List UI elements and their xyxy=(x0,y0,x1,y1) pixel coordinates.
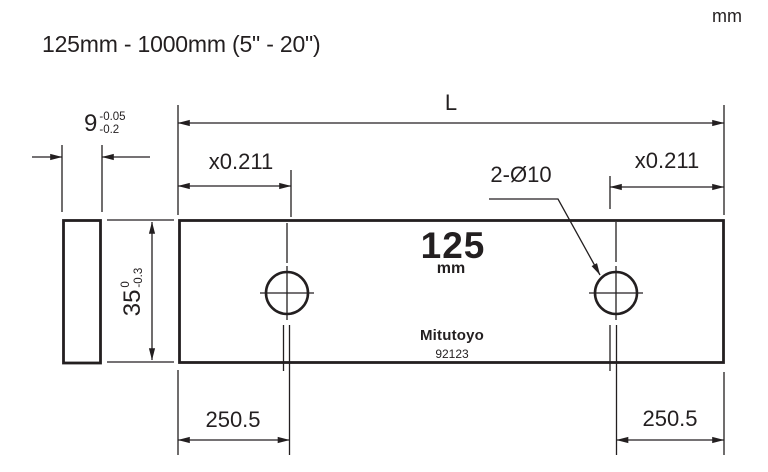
airy-right-label: x0.211 xyxy=(635,150,699,172)
drawing-geometry xyxy=(0,0,768,472)
length-label: L xyxy=(445,92,457,114)
height-value: 35 0 -0.3 xyxy=(121,268,145,317)
drawing-title: 125mm - 1000mm (5" - 20") xyxy=(42,33,320,56)
thickness-dimension xyxy=(32,145,150,212)
side-view-outline xyxy=(64,221,101,364)
plate-unit-marking: mm xyxy=(437,261,465,277)
height-tolerance: 0 -0.3 xyxy=(120,268,145,288)
airy-right-dimension xyxy=(610,176,724,209)
hole-offset-left-label: 250.5 xyxy=(205,409,260,431)
unit-label: mm xyxy=(712,7,742,25)
height-number: 35 xyxy=(121,290,145,317)
gauge-block-technical-drawing: 125mm - 1000mm (5" - 20") mm L x0.211 x0… xyxy=(0,0,768,472)
thickness-number: 9 xyxy=(84,112,97,136)
model-number: 92123 xyxy=(435,348,468,360)
plate-size-marking: 125 xyxy=(421,227,486,264)
airy-left-dimension xyxy=(178,170,291,217)
hole-right xyxy=(589,222,643,455)
airy-left-label: x0.211 xyxy=(209,151,273,173)
thickness-value: 9 -0.05 -0.2 xyxy=(84,112,126,136)
thickness-tolerance: -0.05 -0.2 xyxy=(99,111,125,136)
hole-offset-right-label: 250.5 xyxy=(642,408,697,430)
holes-leader-arrow xyxy=(489,199,600,275)
holes-label: 2-Ø10 xyxy=(490,164,551,186)
hole-left xyxy=(260,223,314,455)
brand-logo: Mitutoyo xyxy=(420,328,484,343)
